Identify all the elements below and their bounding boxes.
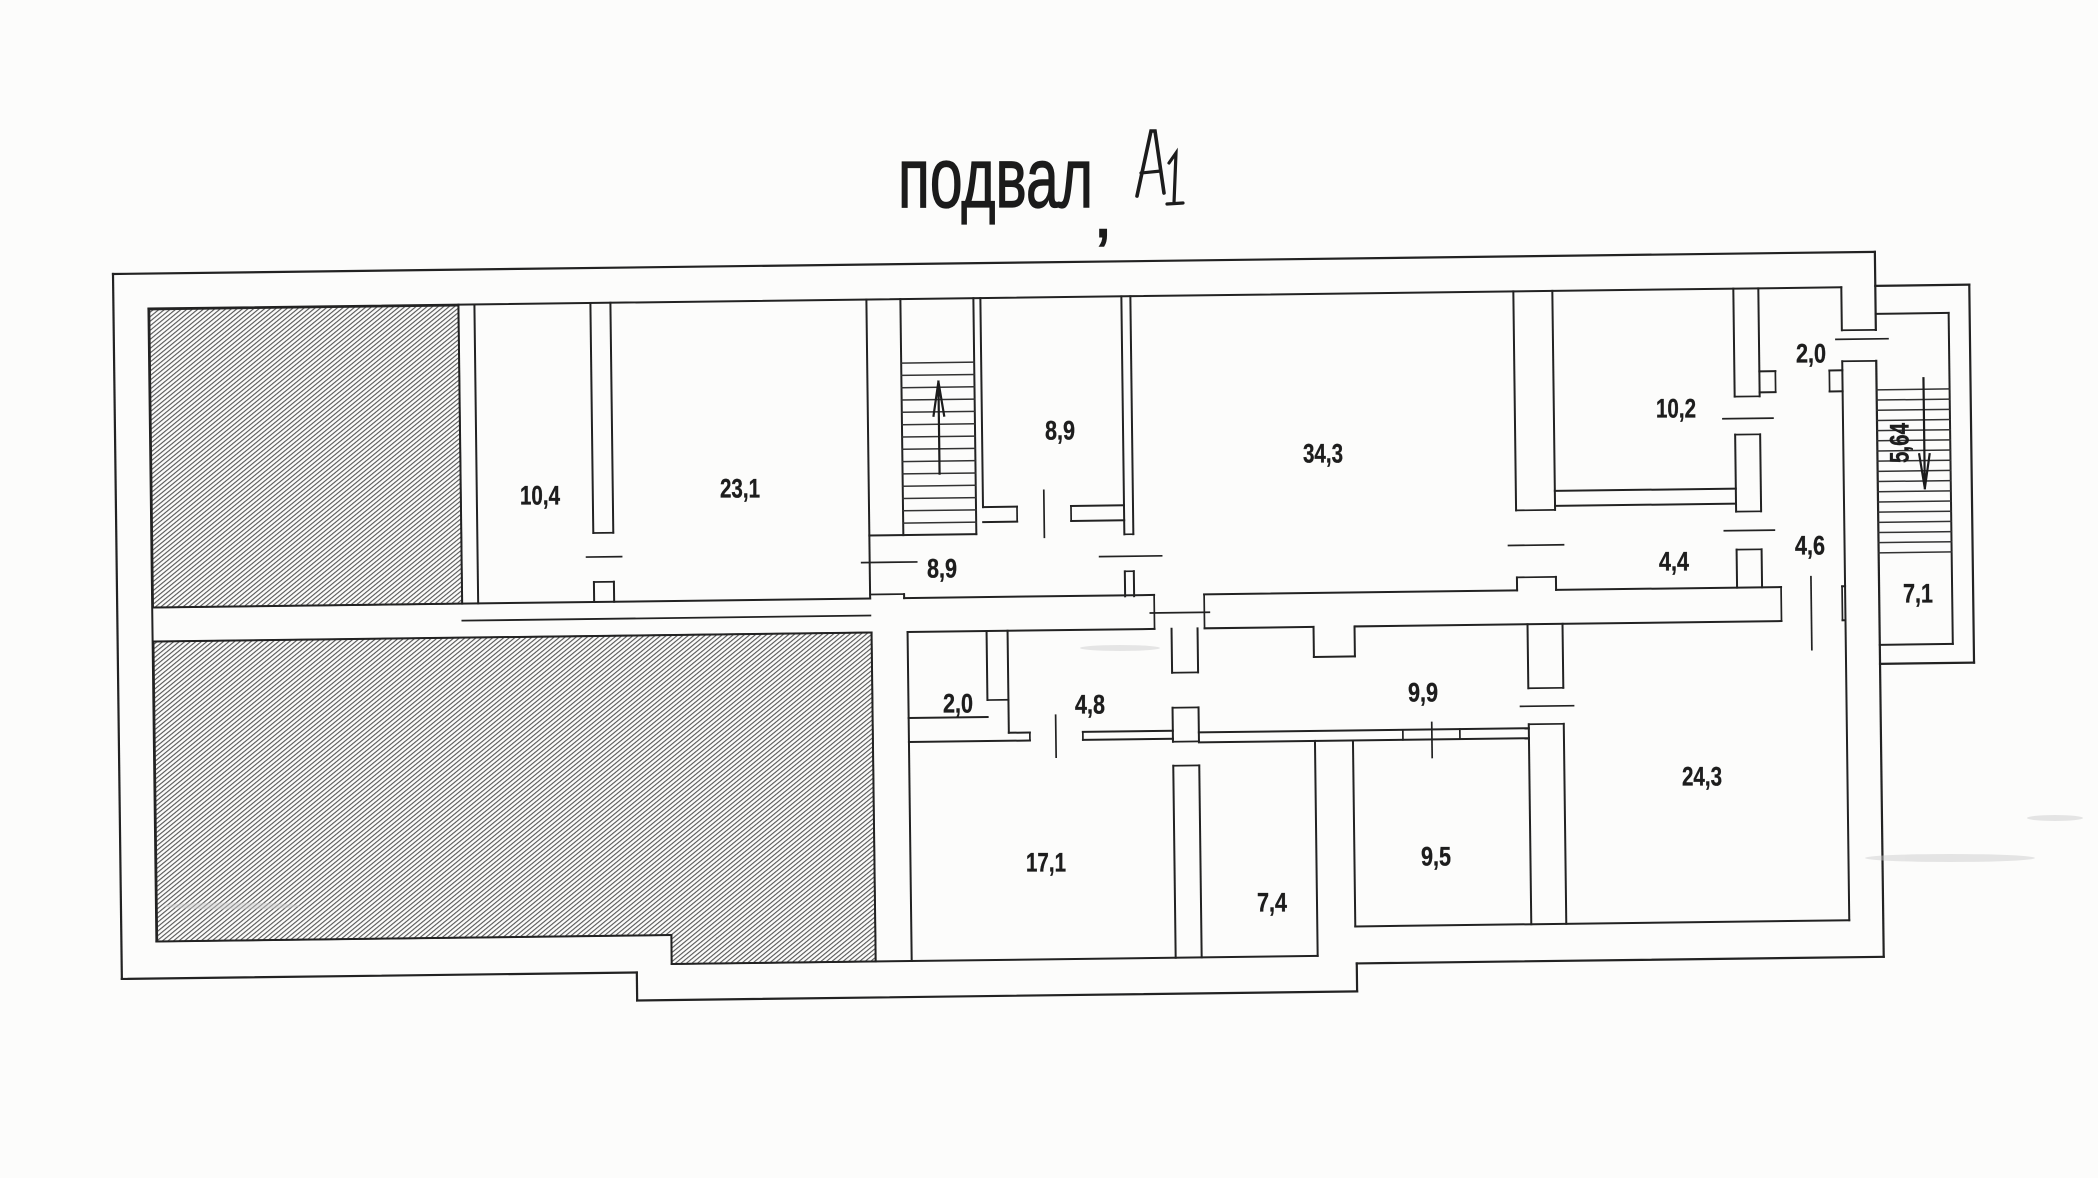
svg-text:24,3: 24,3 — [1682, 762, 1722, 792]
svg-text:10,4: 10,4 — [520, 481, 560, 511]
svg-text:8,9: 8,9 — [927, 554, 957, 584]
svg-text:10,2: 10,2 — [1656, 394, 1696, 424]
svg-text:7,4: 7,4 — [1257, 888, 1287, 918]
svg-text:9,9: 9,9 — [1408, 678, 1438, 708]
svg-text:17,1: 17,1 — [1026, 848, 1066, 878]
svg-text:2,0: 2,0 — [943, 689, 973, 719]
svg-text:7,1: 7,1 — [1903, 579, 1933, 609]
svg-text:,: , — [1093, 173, 1113, 253]
svg-text:4,4: 4,4 — [1659, 547, 1689, 577]
svg-text:34,3: 34,3 — [1303, 439, 1343, 469]
svg-text:подвал: подвал — [898, 131, 1093, 226]
svg-text:2,0: 2,0 — [1796, 339, 1826, 369]
svg-text:4,6: 4,6 — [1795, 531, 1825, 561]
svg-text:8,9: 8,9 — [1045, 416, 1075, 446]
svg-text:23,1: 23,1 — [720, 474, 760, 504]
svg-text:9,5: 9,5 — [1421, 842, 1451, 872]
svg-text:5,64: 5,64 — [1885, 423, 1915, 463]
svg-text:4,8: 4,8 — [1075, 690, 1105, 720]
